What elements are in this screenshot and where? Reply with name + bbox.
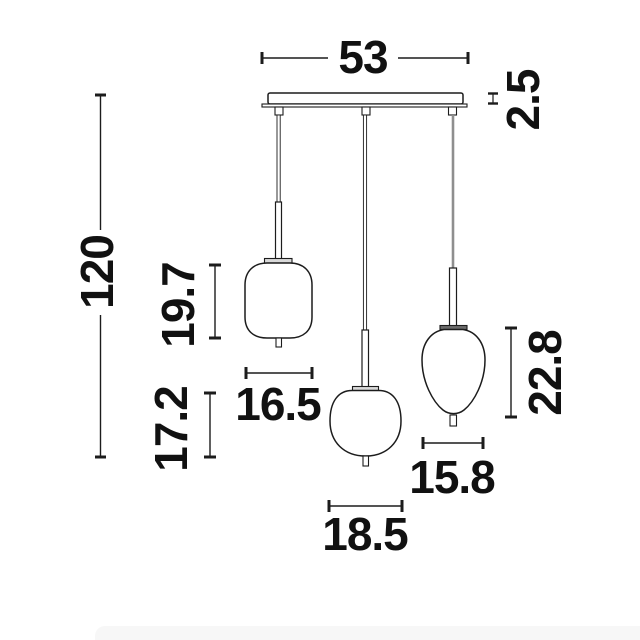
- dim-middle-shade-width-label: 18.5: [322, 508, 408, 560]
- dim-right-shade-height-label: 22.8: [519, 330, 571, 416]
- dim-canopy-thickness-label: 2.5: [497, 69, 549, 130]
- dim-left-shade-width-label: 16.5: [235, 378, 321, 430]
- dimension-labels: 53 2.5 120 19.7 16.5 17.2 18.5 22.8 15.8: [71, 31, 571, 560]
- dim-left-shade-height-line: [209, 265, 221, 338]
- pendant-middle-stem-tube: [362, 330, 369, 387]
- pendant-middle-shade: [330, 391, 401, 457]
- pendant-lamp-dimension-drawing: 53 2.5 120 19.7 16.5 17.2 18.5 22.8 15.8: [0, 0, 640, 640]
- pendant-right-finial: [450, 415, 457, 426]
- pendant-right-stem-tube: [450, 268, 457, 326]
- dim-right-shade-width-label: 15.8: [409, 451, 495, 503]
- pendant-middle-cord: [363, 115, 366, 330]
- pendant-right-shade: [422, 330, 485, 414]
- product-dimension-page: 53 2.5 120 19.7 16.5 17.2 18.5 22.8 15.8: [0, 0, 640, 640]
- cord-grip-left: [275, 107, 283, 115]
- cord-grip-middle: [362, 107, 370, 115]
- pendant-middle: [330, 115, 401, 466]
- dim-overall-height-label: 120: [71, 235, 123, 309]
- pendant-left: [245, 115, 312, 347]
- pendant-middle-finial: [363, 456, 369, 466]
- dim-canopy-width-label: 53: [338, 31, 387, 83]
- footer-section-edge: [95, 626, 640, 640]
- cord-grip-right: [449, 107, 457, 115]
- dim-right-shade-width-line: [423, 437, 483, 449]
- pendant-right: [422, 115, 485, 426]
- pendant-left-stem-tube: [276, 202, 282, 259]
- canopy-bar: [268, 93, 463, 104]
- pendant-left-shade: [245, 263, 312, 338]
- pendant-left-cord: [277, 115, 280, 202]
- dim-middle-shade-height-label: 17.2: [145, 386, 197, 472]
- dim-right-shade-height-line: [505, 328, 517, 417]
- pendant-left-finial: [276, 338, 282, 347]
- dim-left-shade-height-label: 19.7: [152, 262, 204, 348]
- dim-middle-shade-height-line: [204, 393, 216, 457]
